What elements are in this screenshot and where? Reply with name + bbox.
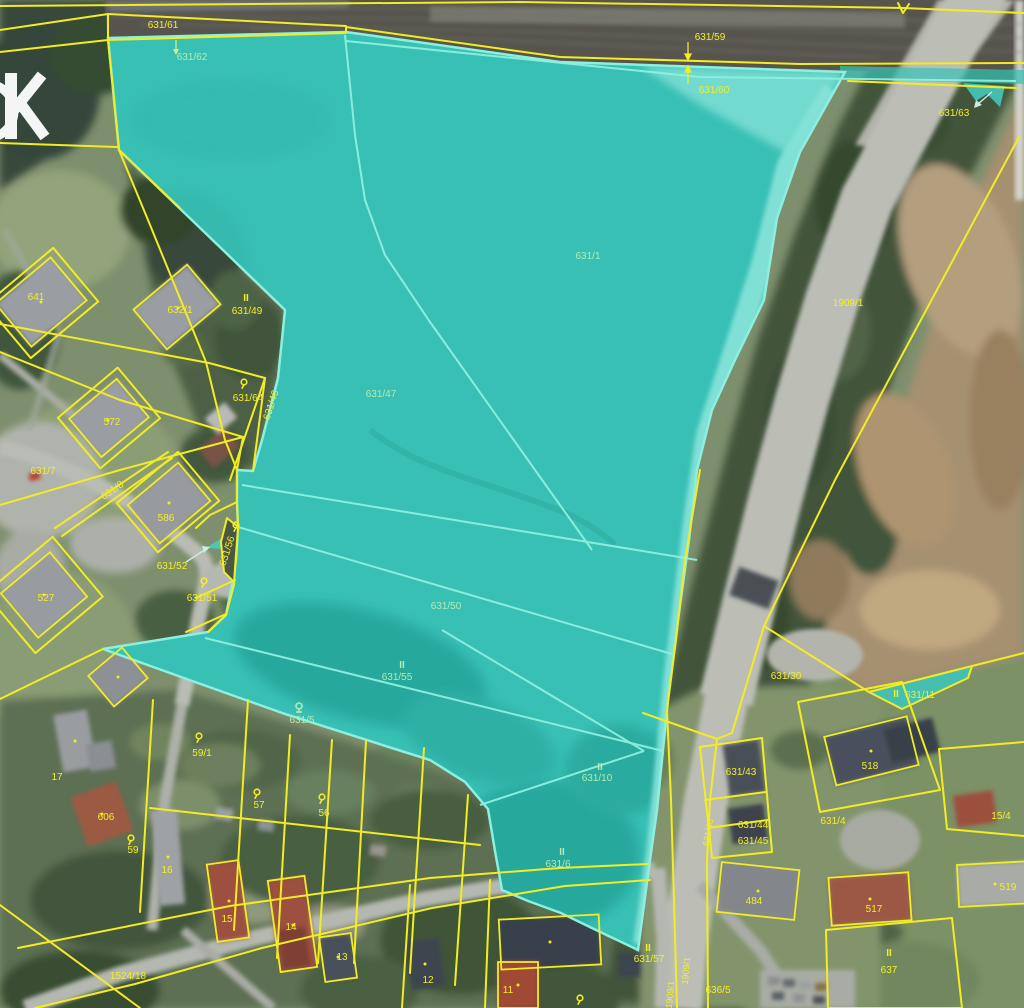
- svg-text:II: II: [559, 847, 565, 858]
- svg-text:16: 16: [161, 865, 173, 876]
- svg-text:631/6: 631/6: [545, 859, 570, 870]
- svg-text:631/59: 631/59: [695, 32, 726, 43]
- svg-text:631/44: 631/44: [738, 820, 769, 831]
- svg-text:518: 518: [862, 761, 879, 772]
- svg-text:631/10: 631/10: [582, 773, 613, 784]
- svg-text:II: II: [399, 660, 405, 671]
- svg-text:631/52: 631/52: [157, 561, 188, 572]
- svg-text:572: 572: [104, 417, 121, 428]
- svg-text:631/50: 631/50: [431, 601, 462, 612]
- svg-text:631/61: 631/61: [148, 20, 179, 31]
- svg-text:586: 586: [158, 513, 175, 524]
- svg-text:631/11: 631/11: [905, 690, 935, 701]
- svg-text:641: 641: [28, 292, 45, 303]
- svg-text:637: 637: [881, 965, 898, 976]
- svg-text:631/51: 631/51: [187, 593, 218, 604]
- svg-text:631/5: 631/5: [289, 715, 314, 726]
- svg-text:631/64: 631/64: [233, 393, 264, 404]
- svg-text:632/1: 632/1: [167, 305, 192, 316]
- svg-text:11: 11: [503, 985, 514, 996]
- svg-text:519: 519: [1000, 882, 1017, 893]
- svg-text:15/4: 15/4: [991, 811, 1011, 822]
- svg-text:II: II: [243, 293, 249, 304]
- svg-text:631/63: 631/63: [939, 108, 970, 119]
- svg-text:606: 606: [98, 812, 115, 823]
- svg-text:636/5: 636/5: [705, 985, 730, 996]
- svg-text:631/49: 631/49: [232, 306, 263, 317]
- svg-text:13: 13: [336, 952, 348, 963]
- svg-text:631/55: 631/55: [382, 672, 413, 683]
- svg-text:II: II: [645, 943, 651, 954]
- svg-text:631/7: 631/7: [30, 466, 55, 477]
- svg-text:1524/18: 1524/18: [110, 971, 147, 982]
- svg-text:527: 527: [38, 593, 55, 604]
- svg-text:631/30: 631/30: [771, 671, 802, 682]
- svg-text:631/45: 631/45: [738, 836, 769, 847]
- svg-text:59: 59: [127, 845, 139, 856]
- svg-text:631/1: 631/1: [575, 251, 600, 262]
- svg-text:631/47: 631/47: [366, 389, 397, 400]
- svg-text:631/4: 631/4: [820, 816, 845, 827]
- svg-text:1909/1: 1909/1: [833, 298, 864, 309]
- svg-text:59/1: 59/1: [192, 748, 212, 759]
- svg-text:II: II: [597, 762, 603, 773]
- svg-text:56: 56: [318, 808, 330, 819]
- svg-text:17: 17: [51, 772, 63, 783]
- svg-text:484: 484: [746, 896, 763, 907]
- svg-text:631/60: 631/60: [699, 85, 730, 96]
- svg-text:517: 517: [866, 904, 883, 915]
- svg-text:631/43: 631/43: [726, 767, 757, 778]
- svg-text:12: 12: [422, 975, 434, 986]
- svg-text:15: 15: [221, 914, 233, 925]
- svg-text:14: 14: [285, 922, 297, 933]
- svg-text:57: 57: [253, 800, 265, 811]
- svg-text:II: II: [893, 689, 899, 700]
- svg-text:631/57: 631/57: [634, 954, 665, 965]
- svg-text:631/62: 631/62: [177, 52, 208, 63]
- svg-text:II: II: [886, 948, 892, 959]
